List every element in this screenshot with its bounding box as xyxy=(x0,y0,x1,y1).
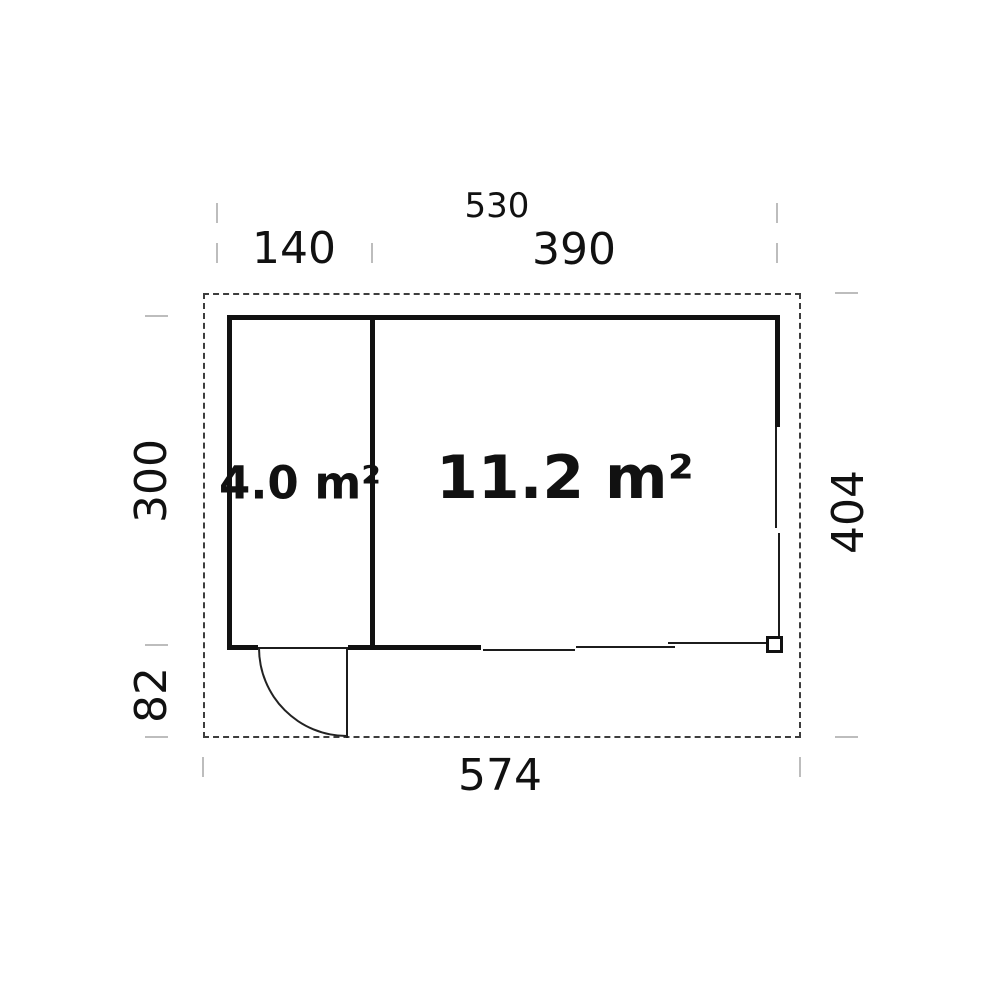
corner-post-icon xyxy=(766,636,783,653)
dimension-label-top-left-section: 140 xyxy=(252,227,336,271)
dimension-label-left-height: 300 xyxy=(130,439,174,523)
dimension-label-right-depth: 404 xyxy=(827,470,871,554)
wall-bottom-left-of-door xyxy=(227,645,258,650)
wall-top xyxy=(227,315,780,320)
dimension-label-bottom-width: 574 xyxy=(458,754,542,798)
tick-82-bottom xyxy=(145,736,168,738)
dimension-label-left-overhang: 82 xyxy=(130,667,174,723)
tick-574-left xyxy=(202,757,204,777)
tick-140-left xyxy=(216,243,218,263)
room-area-label-main-room: 11.2 m² xyxy=(436,448,694,508)
tick-300-top xyxy=(145,315,168,317)
open-edge-bottom-3 xyxy=(668,642,767,644)
floor-plan: 530 140 390 300 82 404 574 4.0 m² 11.2 m… xyxy=(0,0,1000,1000)
tick-404-bottom xyxy=(835,736,858,738)
tick-530-right xyxy=(776,203,778,223)
wall-right-upper xyxy=(775,315,780,427)
tick-390-right xyxy=(776,243,778,263)
tick-140-390-middle xyxy=(371,243,373,263)
wall-bottom-right-of-door xyxy=(348,645,481,650)
open-edge-bottom-2 xyxy=(576,646,675,648)
open-edge-right-2 xyxy=(778,533,780,637)
tick-404-top xyxy=(835,292,858,294)
room-area-label-small-room: 4.0 m² xyxy=(219,461,381,506)
tick-300-bottom xyxy=(145,644,168,646)
dimension-label-top-total: 530 xyxy=(465,189,530,223)
open-edge-bottom-1 xyxy=(483,649,575,651)
dimension-label-top-right-section: 390 xyxy=(532,228,616,272)
tick-530-left xyxy=(216,203,218,223)
open-edge-right-1 xyxy=(775,427,777,528)
tick-574-right xyxy=(799,757,801,777)
